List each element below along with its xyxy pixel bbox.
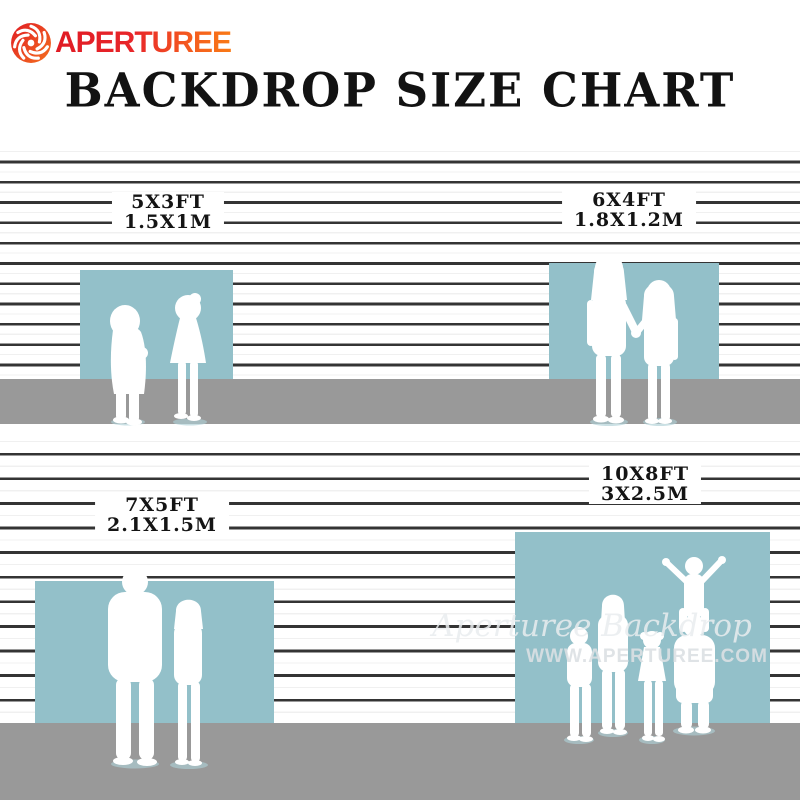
size-label-m: 3X2.5M <box>601 484 689 504</box>
silhouette-family-10x8ft <box>555 550 740 746</box>
size-label-ft: 5X3FT <box>124 192 212 212</box>
girl-silhouette <box>638 631 666 742</box>
page-title: BACKDROP SIZE CHART <box>0 63 800 118</box>
aperture-icon <box>10 22 52 64</box>
silhouette-girls-6x4ft <box>575 250 690 426</box>
boy-silhouette <box>567 627 593 742</box>
silhouette-toddlers-5x3ft <box>100 290 225 426</box>
size-label-m: 1.8X1.2M <box>574 210 684 230</box>
father-silhouette <box>674 615 715 734</box>
woman-silhouette <box>174 600 203 766</box>
size-label-m: 2.1X1.5M <box>107 515 217 535</box>
size-label-ft: 6X4FT <box>574 190 684 210</box>
size-label-7x5ft: 7X5FT 2.1X1.5M <box>95 495 229 535</box>
silhouette-couple-7x5ft <box>95 565 220 771</box>
size-label-ft: 10X8FT <box>601 464 689 484</box>
man-silhouette <box>108 569 162 766</box>
mother-silhouette <box>598 595 628 735</box>
size-label-6x4ft: 6X4FT 1.8X1.2M <box>562 190 696 230</box>
brand-wordmark: APERTUREE <box>55 26 231 60</box>
size-label-ft: 7X5FT <box>107 495 217 515</box>
tall-girl-silhouette <box>587 254 636 424</box>
brand-logo: APERTUREE <box>10 22 231 64</box>
small-girl-silhouette <box>631 280 678 424</box>
toddler-boy-silhouette <box>110 305 148 426</box>
size-label-5x3ft: 5X3FT 1.5X1M <box>112 192 224 232</box>
toddler-girl-silhouette <box>170 293 206 421</box>
size-label-10x8ft: 10X8FT 3X2.5M <box>589 464 701 504</box>
size-label-m: 1.5X1M <box>124 212 212 232</box>
backdrop-size-chart-poster: APERTUREE BACKDROP SIZE CHART 5X3FT 1.5X… <box>0 0 800 800</box>
